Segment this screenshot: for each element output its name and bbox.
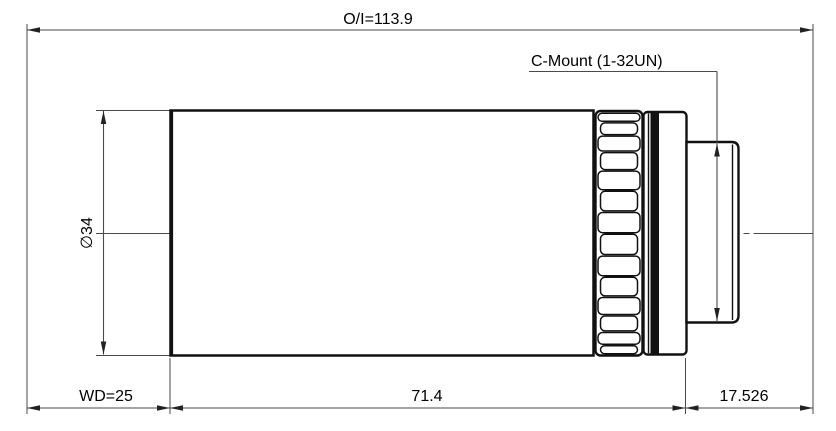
knurl-rib — [601, 346, 638, 354]
lens-technical-drawing: O/I=113.9 C-Mount (1-32UN) ∅34 WD=25 71.… — [0, 0, 836, 431]
knurl-rib — [601, 234, 638, 254]
knurl-rib — [601, 123, 638, 135]
knurl-rib — [598, 333, 640, 345]
flange-distance-label: 17.526 — [720, 388, 769, 405]
drawing-canvas: O/I=113.9 C-Mount (1-32UN) ∅34 WD=25 71.… — [0, 0, 836, 431]
knurl-rib — [601, 316, 638, 331]
knurl-rib — [601, 277, 638, 296]
rear-flange — [644, 112, 687, 355]
c-mount-cylinder — [687, 142, 739, 323]
main-barrel — [171, 111, 594, 356]
knurl-rib — [601, 153, 638, 170]
wd-label: WD=25 — [79, 388, 133, 405]
knurl-rib — [601, 191, 638, 211]
lens-body — [171, 111, 739, 356]
mount-label: C-Mount (1-32UN) — [531, 53, 663, 70]
diameter-label: ∅34 — [79, 217, 96, 249]
knurl-rib — [598, 136, 640, 151]
knurl-rib — [598, 171, 640, 190]
knurl-rib — [598, 298, 640, 315]
knurl-rib — [598, 113, 640, 121]
knurl-rib — [598, 256, 640, 276]
body-length-label: 71.4 — [411, 388, 442, 405]
knurl-rib — [598, 213, 640, 233]
black-band — [651, 113, 660, 355]
overall-dimension-label: O/I=113.9 — [343, 11, 413, 28]
